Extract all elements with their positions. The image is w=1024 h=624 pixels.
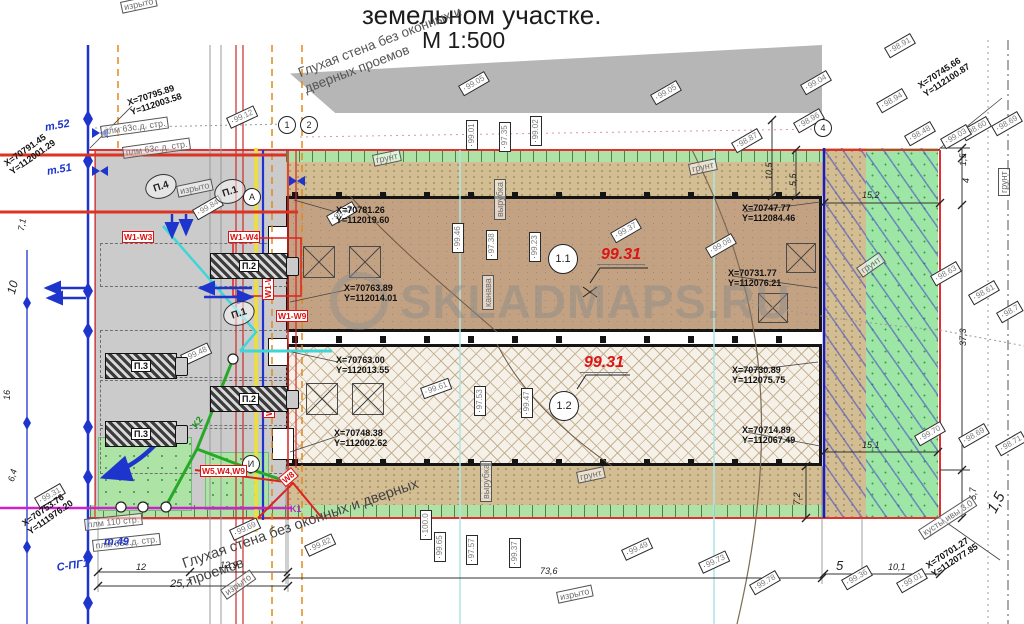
watermark: SKLADMAPS.RU (330, 272, 791, 330)
utility-line-label: т.51 (46, 162, 73, 178)
axis-marker: 1 (278, 116, 296, 134)
elevation-mark: 99.49 (621, 537, 653, 560)
section-marker-1-1: 1.1 (548, 244, 578, 274)
column-row-top (292, 192, 816, 199)
elevation-mark: 98.48 (904, 121, 936, 146)
dimension-label: 4 (961, 178, 971, 183)
dimension-label: 10 (4, 279, 21, 296)
elevation-mark: 98.94 (876, 88, 908, 113)
terrain-note: изрыто (120, 0, 157, 14)
building-annex (268, 226, 288, 254)
elevation-mark: 99.37 (509, 538, 521, 568)
column-row-bottom (292, 459, 816, 466)
slope-hatch-tan-zone (824, 148, 866, 517)
elevation-mark: 98.91 (884, 33, 916, 58)
elevation-mark: 99.73 (698, 550, 730, 573)
elevation-mark: 99.03 (940, 124, 972, 149)
site-plan-canvas: земельном участке. М 1:500 Глухая стена … (0, 0, 1024, 624)
floor-elevation-upper: 99.31 (597, 246, 645, 265)
axis-marker: 4 (814, 119, 832, 137)
watermark-text: SKLADMAPS.RU (400, 274, 791, 329)
building-annex (268, 338, 288, 366)
utility-line-label: т.52 (44, 118, 71, 134)
axis-marker: 2 (300, 116, 318, 134)
dimension-label: 7,1 (16, 218, 28, 232)
utility-line-label: т.49 (104, 536, 129, 548)
coordinate-label: X=70745.66Y=112100.87 (916, 53, 972, 99)
coordinate-label: X=70753.76Y=111976.20 (20, 490, 75, 537)
terrain-note: изрыто (556, 585, 593, 604)
parking-bay (100, 380, 287, 426)
coordinate-label: X=70701.27Y=112077.85 (924, 533, 980, 579)
column-row-middle (292, 336, 816, 343)
coordinate-label: X=70791.45Y=112001.29 (2, 129, 58, 177)
dimension-label: 5 (836, 558, 843, 573)
dimension-label: 1,5 (958, 153, 968, 166)
lawn-strip-top (286, 150, 824, 162)
elevation-mark: 98.7 (996, 300, 1024, 323)
elevation-mark: 98.71 (995, 431, 1024, 456)
dimension-label: 73,6 (540, 566, 558, 576)
column-grid-symbol (786, 243, 816, 273)
elevation-mark: 99.01 (466, 120, 478, 150)
elevation-mark: 98.60 (960, 116, 992, 141)
elevation-mark: 98.69 (958, 423, 990, 448)
section-marker-1-2: 1.2 (549, 391, 579, 421)
column-grid-symbol (306, 383, 338, 415)
coordinate-label: X=70795.89Y=112003.58 (126, 82, 183, 118)
dimension-label: 1,5 (984, 490, 1009, 516)
parking-bay (100, 330, 287, 378)
elevation-mark: 99.31 (34, 483, 66, 508)
dimension-label: 10,1 (888, 562, 906, 572)
dimension-label: 12 (136, 562, 146, 572)
slope-hatch-green-zone (866, 148, 938, 517)
soil-band-top (286, 162, 824, 196)
elevation-mark: 97.57 (466, 535, 478, 565)
utility-line-label: С-ПГ1 (56, 557, 90, 573)
elevation-mark: 99.78 (749, 570, 781, 595)
floor-elevation-lower: 99.31 (580, 354, 628, 373)
terrain-note: плм 63с.д. стр. (100, 117, 169, 138)
column-grid-symbol (352, 383, 384, 415)
dimension-label: 5,7 (968, 487, 978, 500)
elevation-mark: 98.69 (991, 111, 1023, 136)
building-annex (272, 428, 294, 460)
elevation-mark: 99.01 (896, 568, 928, 593)
dimension-label: 16 (2, 390, 12, 400)
parking-bay (100, 243, 287, 287)
watermark-logo-icon (330, 272, 388, 330)
elevation-mark: 99.12 (226, 105, 258, 128)
elevation-mark: 99.02 (530, 116, 542, 146)
elevation-mark: 97.35 (499, 122, 511, 152)
terrain-note: плм 63с.д. стр. (92, 533, 161, 552)
elevation-mark: 99.36 (841, 565, 873, 590)
dimension-label: 6,4 (6, 468, 19, 483)
terrain-note: грунт (998, 168, 1010, 196)
dimension-label: 37,3 (958, 328, 968, 346)
elevation-mark: 98.61 (968, 280, 1000, 305)
elevation-mark: 99.65 (434, 532, 446, 562)
well-marker: И (242, 455, 260, 473)
